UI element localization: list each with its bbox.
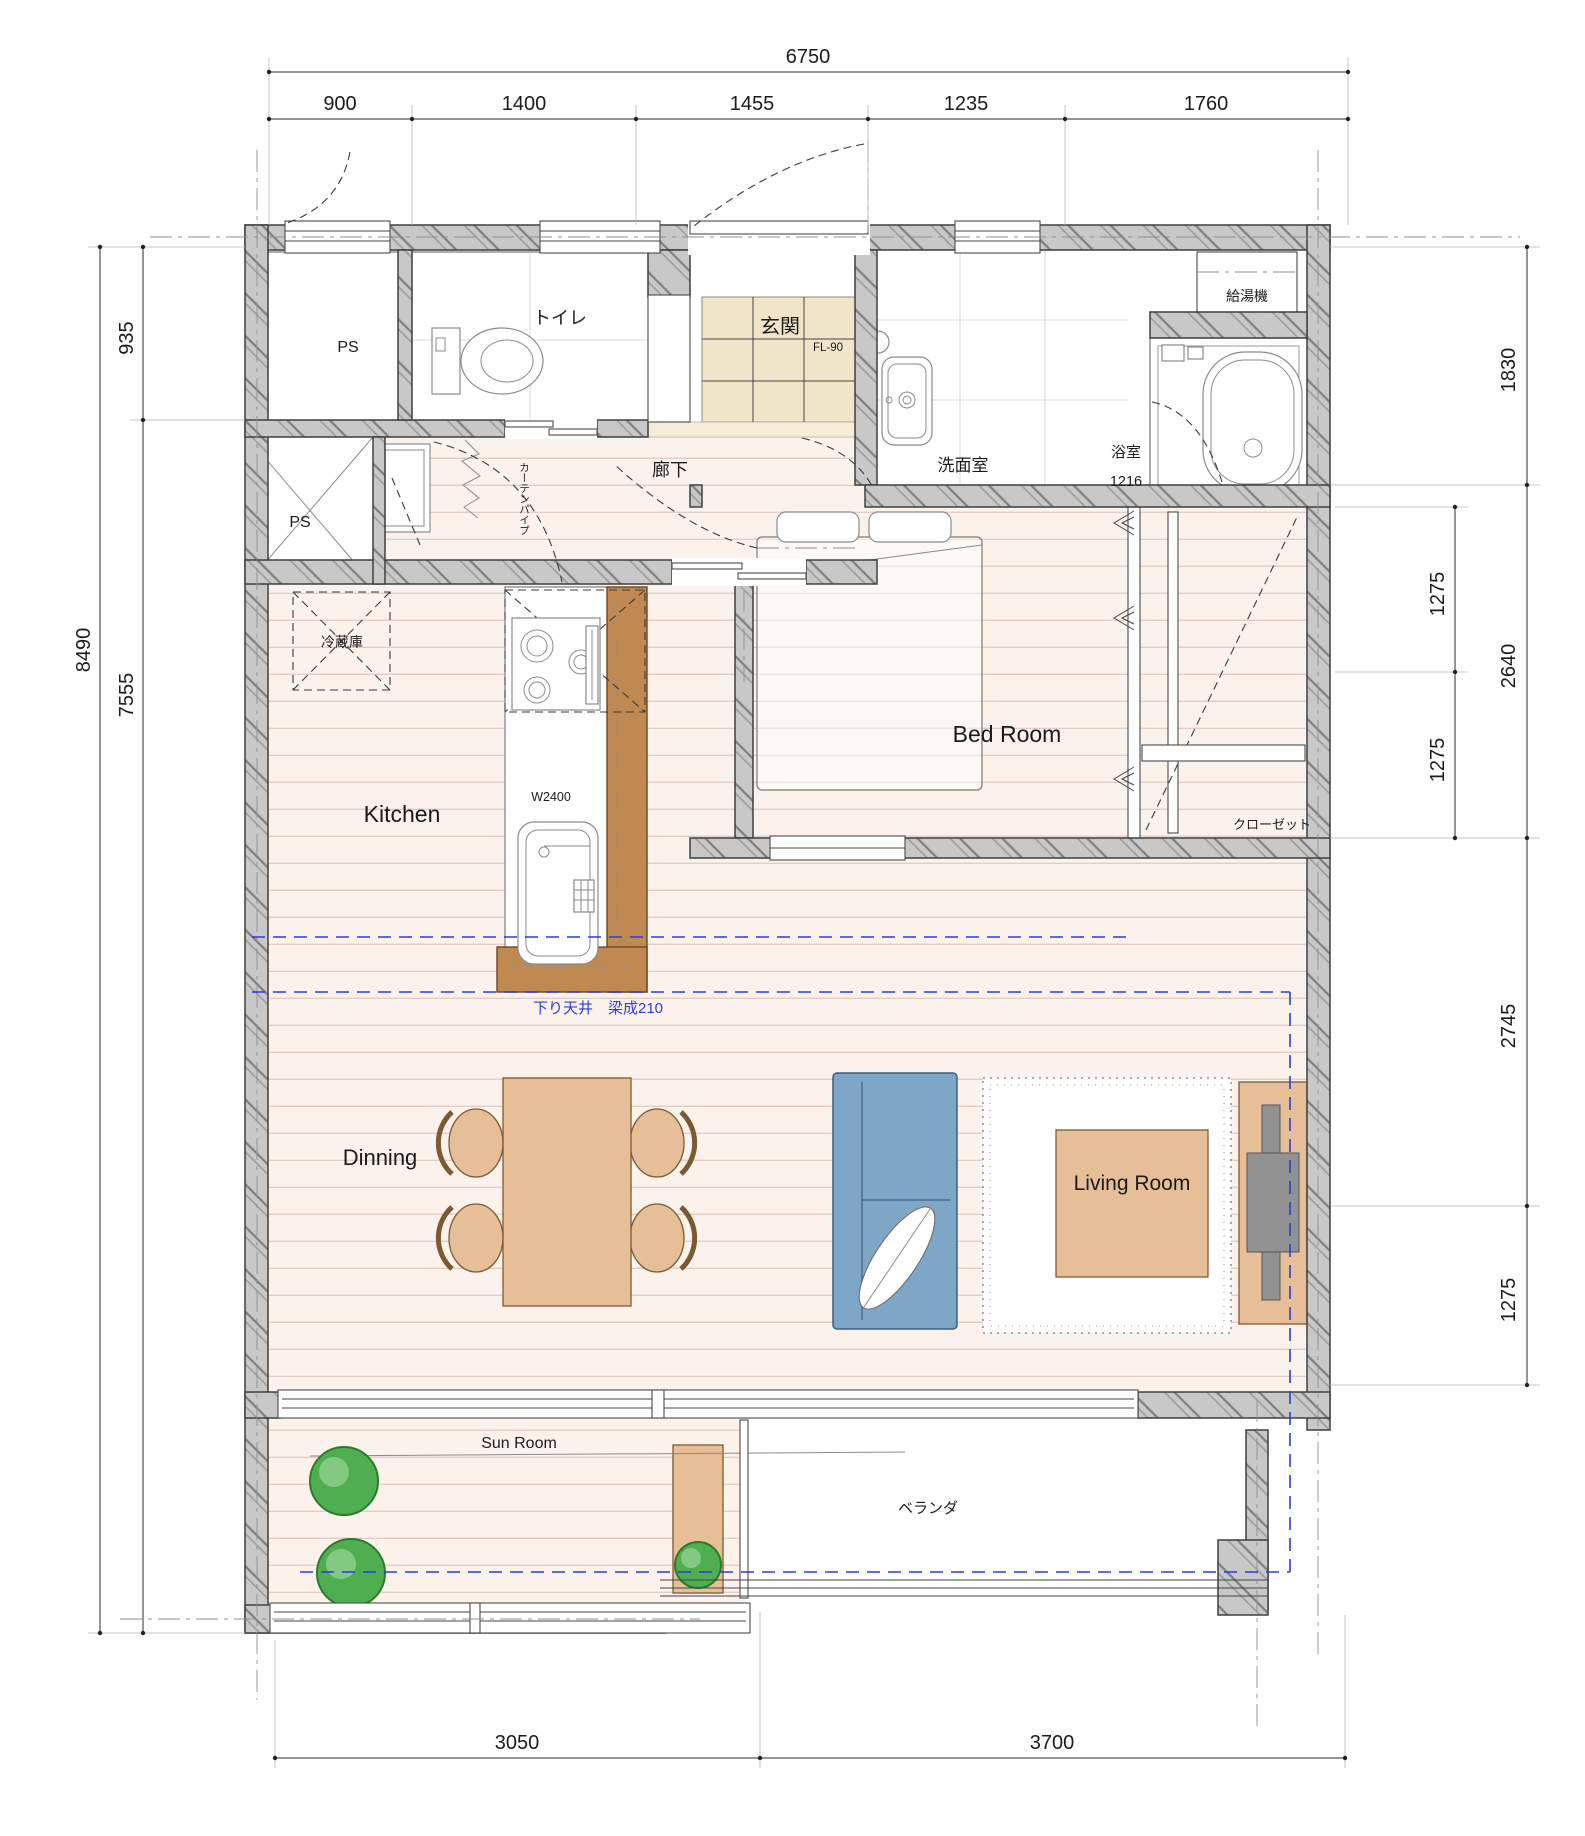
room-label-sunroom: Sun Room — [481, 1435, 557, 1452]
room-label-closet: クローゼット — [1233, 817, 1311, 832]
dim-right-seg-3: 2745 — [1498, 1004, 1520, 1049]
dim-bottom-seg-2: 3700 — [1030, 1732, 1075, 1754]
room-label-living: Living Room — [1074, 1172, 1191, 1195]
dim-left-seg-2: 7555 — [116, 673, 138, 718]
sofa-icon — [833, 1073, 957, 1329]
dim-left-seg-1: 935 — [116, 321, 138, 354]
room-label-ps-lower: PS — [289, 514, 310, 531]
coffee-table — [1056, 1130, 1208, 1277]
room-label-dining: Dinning — [343, 1145, 418, 1170]
dim-top-seg-2: 1400 — [502, 93, 547, 115]
dim-right-seg-2: 2640 — [1498, 644, 1520, 689]
washing-machine-pan-icon — [378, 444, 430, 545]
dim-right-inner-2: 1275 — [1427, 738, 1449, 783]
bathroom-size-note: 1216 — [1110, 474, 1142, 490]
plant-icon — [317, 1539, 385, 1607]
room-label-entrance: 玄関 — [760, 315, 800, 338]
kitchen-sink-icon — [518, 822, 598, 964]
plant-icon — [675, 1542, 721, 1588]
ps-upper-room — [268, 252, 398, 420]
dim-right-seg-4: 1275 — [1498, 1278, 1520, 1323]
floor-plan-page: 6750 900 1400 1455 1235 1760 3050 3700 9… — [0, 0, 1585, 1836]
room-label-water-heater: 給湯機 — [1226, 288, 1268, 304]
room-label-ps-upper: PS — [337, 339, 358, 356]
dim-top-seg-3: 1455 — [730, 93, 775, 115]
room-label-toilet: トイレ — [533, 308, 587, 328]
room-label-washroom: 洗面室 — [938, 456, 989, 475]
toilet-icon — [432, 328, 543, 394]
room-label-corridor: 廊下 — [652, 460, 688, 480]
entrance-floor-level-note: FL-90 — [813, 342, 843, 354]
dim-top-seg-4: 1235 — [944, 93, 989, 115]
veranda-floor — [748, 1418, 1268, 1580]
room-label-bedroom: Bed Room — [953, 721, 1062, 747]
dim-left-overall: 8490 — [73, 628, 95, 673]
dim-top-overall: 6750 — [786, 46, 831, 68]
shoe-cabinet — [648, 295, 690, 422]
curtain-pipe-label: カーテンパイプ — [518, 462, 530, 536]
dim-bottom-seg-1: 3050 — [495, 1732, 540, 1754]
bed-icon — [757, 512, 982, 790]
room-label-kitchen: Kitchen — [364, 801, 441, 827]
refrigerator-label: 冷蔵庫 — [321, 634, 363, 650]
dim-top-seg-1: 900 — [323, 93, 356, 115]
room-label-bathroom: 浴室 — [1111, 444, 1141, 461]
room-label-veranda: ベランダ — [898, 1500, 958, 1517]
dim-right-inner-1: 1275 — [1427, 572, 1449, 617]
dim-right-seg-1: 1830 — [1498, 348, 1520, 393]
dim-top-seg-5: 1760 — [1184, 93, 1229, 115]
beam-note: 下り天井 梁成210 — [533, 1000, 663, 1017]
tv-board-icon — [1239, 1082, 1307, 1324]
floor-plan-drawing: 6750 900 1400 1455 1235 1760 3050 3700 9… — [0, 0, 1585, 1836]
counter-width-note: W2400 — [531, 790, 571, 804]
plant-icon — [310, 1447, 378, 1515]
